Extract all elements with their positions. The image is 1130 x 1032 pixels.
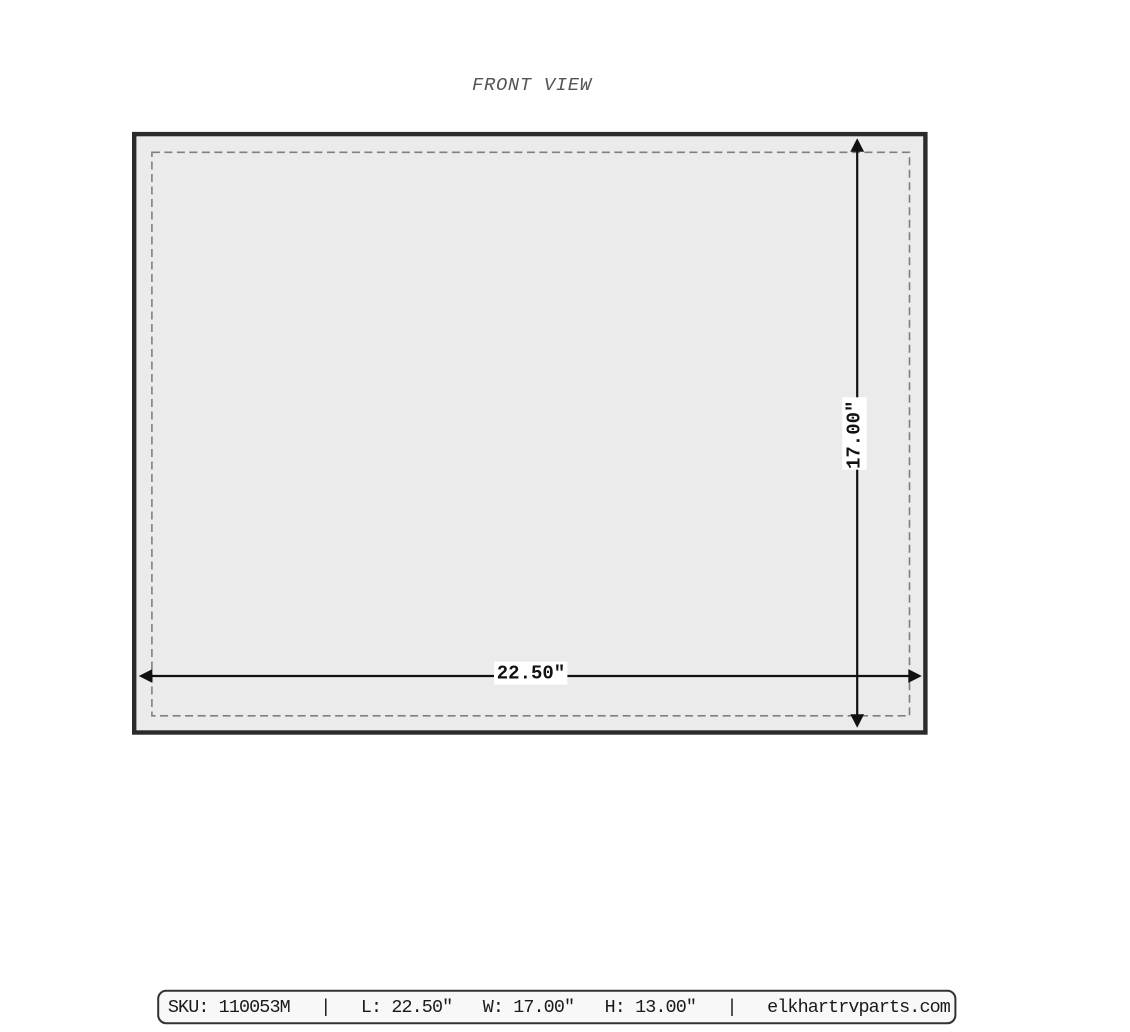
svg-text:SKU: 110053M | L: 22.50": SKU: 110053M | L: 22.50" W: 17.00" H: 13… (168, 997, 951, 1018)
svg-text:22.50": 22.50" (497, 663, 565, 685)
svg-text:17.00": 17.00" (843, 401, 865, 469)
svg-text:FRONT VIEW: FRONT VIEW (472, 74, 593, 96)
